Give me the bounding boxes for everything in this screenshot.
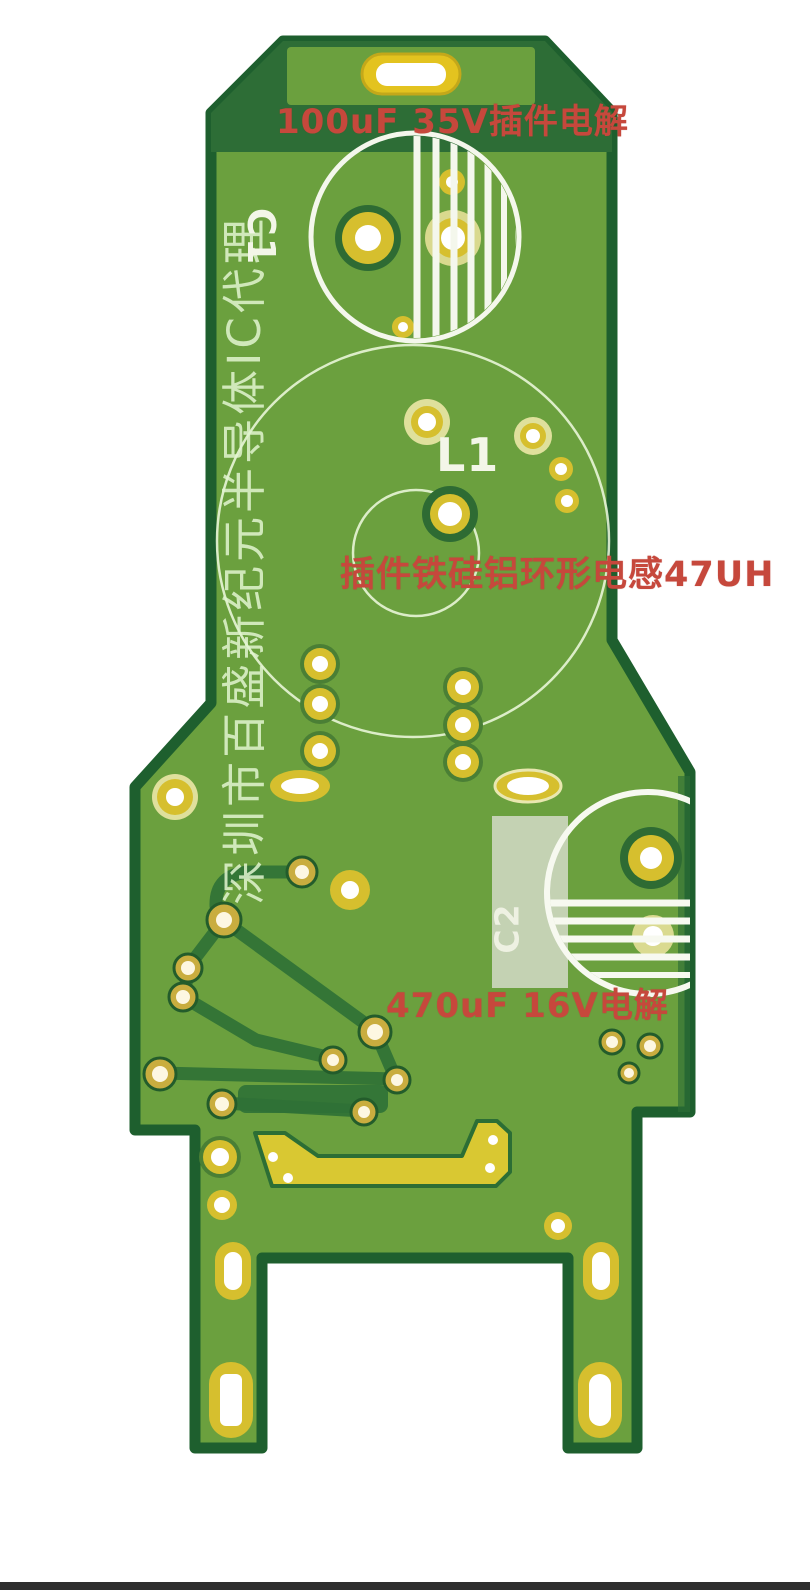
- pcb-product-image: 深圳市百盛新纪元半导体IC代理 C1 L1 C2 100uF 35V插件电解 插…: [0, 0, 810, 1590]
- watermark-text: 深圳市百盛新纪元半导体IC代理: [220, 210, 270, 910]
- leg-slot-pads: [209, 1242, 622, 1438]
- annotation-capacitor-c1: 100uF 35V插件电解: [276, 94, 629, 143]
- annotation-inductor-l1: 插件铁硅铝环形电感47UH: [340, 546, 774, 597]
- silkscreen-label-c1: C1: [239, 208, 283, 266]
- c1-capacitor-footprint: [311, 130, 519, 345]
- silkscreen-label-l1: L1: [436, 428, 499, 482]
- progress-bar[interactable]: [0, 1582, 810, 1590]
- right-edge-shadow: [678, 776, 690, 1112]
- annotation-capacitor-c2: 470uF 16V电解: [386, 978, 669, 1027]
- silkscreen-label-c2: C2: [488, 902, 527, 953]
- top-slot-pad: [362, 54, 460, 94]
- pcb-board-graphic: [0, 0, 810, 1590]
